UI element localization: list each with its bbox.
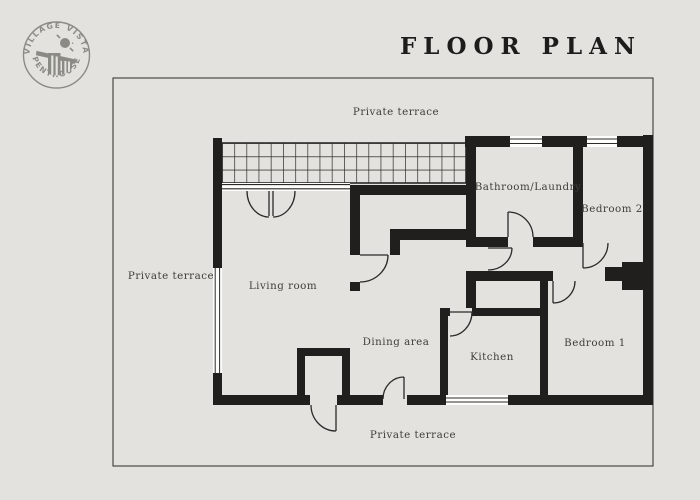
door-dining-terrace <box>383 377 404 399</box>
glazed-wall <box>222 183 350 191</box>
french-doors-living-room <box>247 191 295 217</box>
floor-plan: Private terrace Private terrace Private … <box>0 0 700 500</box>
label-private-terrace-top: Private terrace <box>353 106 439 118</box>
label-private-terrace-bottom: Private terrace <box>370 429 456 441</box>
door-bathroom <box>508 212 533 237</box>
label-kitchen: Kitchen <box>470 351 514 363</box>
page: { "page": { "background_color": "#e4e2de… <box>0 0 700 500</box>
door-bottom-terrace <box>311 405 336 431</box>
label-living-room: Living room <box>249 280 317 292</box>
label-dining-area: Dining area <box>363 336 430 348</box>
label-private-terrace-left: Private terrace <box>128 270 214 282</box>
chimney-right-wall <box>342 348 350 405</box>
label-bedroom-2: Bedroom 2 <box>581 203 643 215</box>
label-bathroom-laundry: Bathroom/Laundry <box>475 181 582 193</box>
pergola-grid <box>222 143 466 183</box>
door-kitchen <box>450 312 472 336</box>
label-bedroom-1: Bedroom 1 <box>564 337 626 349</box>
door-hallway-entry <box>488 248 512 270</box>
door-living-room-wall <box>360 255 388 282</box>
window-left-wall <box>213 268 222 373</box>
window-bedroom2-top <box>587 136 617 147</box>
window-bathroom-top <box>510 136 542 147</box>
chimney-left-wall <box>297 348 305 405</box>
door-bedroom-1 <box>553 281 575 303</box>
door-bedroom-2 <box>583 243 608 268</box>
window-kitchen-bottom <box>446 395 508 405</box>
